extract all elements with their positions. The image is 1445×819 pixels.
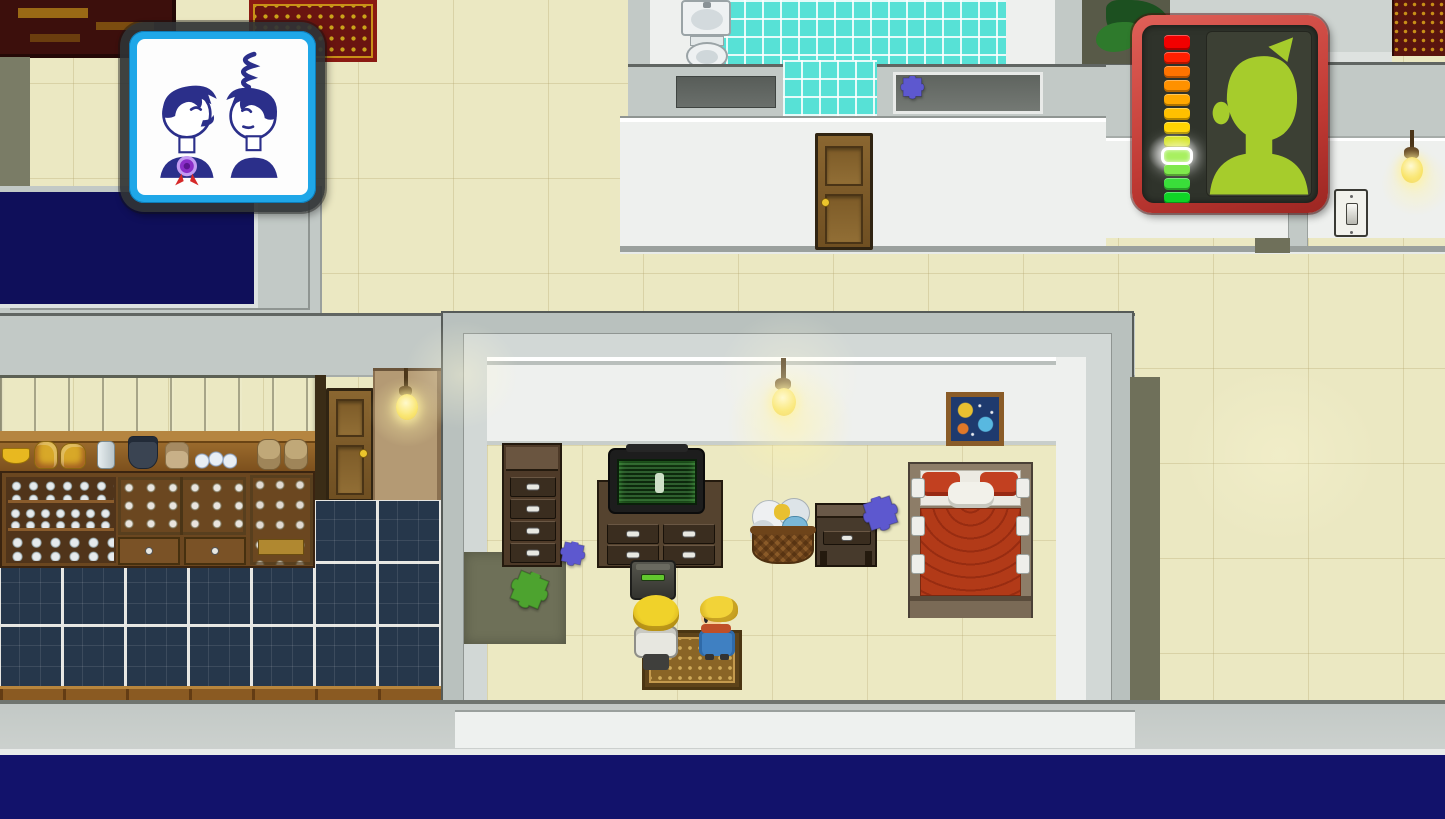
storage-jar — [257, 439, 281, 470]
wall-shadow-strip — [0, 57, 30, 189]
wall-inset-right — [893, 72, 1043, 114]
switch-screw — [1350, 195, 1353, 198]
double-bed[interactable] — [908, 462, 1033, 618]
bathroom-east-wall-white — [1006, 0, 1055, 64]
bed-blanket — [920, 508, 1021, 596]
mood-segment-6 — [1164, 122, 1190, 134]
wall-inset-left — [676, 76, 776, 108]
kitchen-door-frame — [315, 375, 326, 502]
laundry-basket[interactable] — [750, 498, 816, 566]
drawer[interactable] — [607, 524, 659, 544]
teacups — [195, 449, 237, 469]
door-panel — [825, 194, 863, 244]
door-knob — [821, 198, 830, 207]
basket-rim — [750, 526, 816, 534]
popup-border — [129, 31, 316, 203]
drawer-handle — [526, 484, 540, 491]
scribble-icon — [243, 54, 254, 87]
wall-base-line — [620, 246, 1445, 252]
hall-shadow-strip — [1130, 377, 1160, 703]
glass-jar — [97, 441, 115, 469]
hanging-bulb-kitchen — [396, 394, 418, 420]
npc-scarf — [701, 624, 731, 633]
dish-row — [8, 479, 114, 503]
bed-post — [1016, 516, 1030, 536]
tv-top-bar — [626, 444, 688, 452]
tv[interactable] — [608, 448, 705, 514]
dish-row — [8, 535, 114, 561]
dresser-top — [506, 447, 558, 471]
mood-segment-11 — [1164, 192, 1190, 203]
bed-post — [911, 554, 925, 574]
bookshelf-gold-trim — [30, 34, 80, 42]
drawer-handle — [626, 531, 640, 538]
storage-jar — [284, 439, 308, 470]
cabinet-door[interactable] — [184, 537, 246, 565]
door-knob — [359, 449, 368, 458]
npc-shirt — [699, 630, 735, 656]
bathroom-door[interactable] — [815, 133, 873, 250]
player-hair — [633, 595, 679, 631]
bathroom-corridor-tiles — [783, 60, 877, 124]
bowl-yellow — [2, 448, 30, 464]
nightstand-leg — [865, 551, 872, 565]
door-panel — [336, 399, 364, 437]
mood-meter-panel — [1142, 25, 1318, 203]
mood-segment-5 — [1164, 108, 1190, 120]
bed-pillow-white — [948, 482, 994, 508]
hanging-bulb-bedroom — [772, 388, 796, 416]
drawer-handle — [841, 535, 853, 541]
drawer[interactable] — [510, 521, 556, 541]
tall-dresser[interactable] — [502, 443, 562, 567]
door-panel — [825, 146, 863, 186]
drawer-handle — [682, 552, 696, 559]
mood-segment-2 — [1164, 66, 1190, 78]
drawer[interactable] — [823, 531, 871, 545]
npc-hair — [700, 596, 738, 622]
space-picture — [946, 392, 1004, 446]
bedroom-east-wall — [1056, 357, 1086, 707]
mood-segment-0 — [1164, 35, 1190, 50]
light-switch[interactable] — [1334, 189, 1368, 237]
nightstand-top — [817, 505, 875, 518]
mood-segment-7 — [1164, 136, 1190, 148]
character-npc[interactable] — [699, 596, 739, 662]
talking-characters-icon — [141, 41, 301, 191]
bed-post — [911, 478, 925, 498]
sink-bowl — [691, 9, 723, 30]
switch-toggle[interactable] — [1346, 203, 1358, 225]
sink-faucet — [703, 2, 711, 8]
hanging-bulb-east — [1401, 157, 1423, 183]
drawer[interactable] — [663, 524, 715, 544]
bed-post — [911, 516, 925, 536]
bathroom-sink[interactable] — [681, 0, 731, 36]
bathroom-west-wall — [628, 0, 650, 64]
mood-segment-9 — [1164, 164, 1190, 176]
mood-segment-1 — [1164, 52, 1190, 64]
character-portrait-silhouette — [1206, 31, 1312, 197]
game-viewport — [0, 0, 1445, 819]
tv-screen — [617, 459, 697, 505]
mood-meter-segments — [1160, 33, 1194, 195]
toilet-seat — [696, 50, 718, 64]
switch-screw — [1350, 231, 1353, 234]
bed-post — [1016, 478, 1030, 498]
drawer-handle — [526, 506, 540, 513]
cooking-pot — [128, 436, 158, 469]
mood-segment-8 — [1164, 150, 1190, 162]
machine-lid — [636, 564, 670, 570]
hall-shadow-patch — [1255, 238, 1290, 253]
glass-cabinet[interactable] — [118, 477, 246, 535]
npc-foot — [705, 654, 714, 660]
open-shelves — [6, 477, 116, 563]
cabinet-door[interactable] — [118, 537, 180, 565]
player-pants — [643, 654, 669, 670]
dish-row — [8, 507, 114, 531]
ceramic-jar — [165, 442, 189, 469]
nightstand[interactable] — [815, 503, 877, 567]
drawer-handle — [682, 531, 696, 538]
mood-meter — [1132, 15, 1328, 213]
nightstand-leg — [820, 551, 827, 565]
glass-cabinet-tall[interactable] — [250, 475, 313, 565]
drawer[interactable] — [510, 543, 556, 563]
light-glow — [1140, 330, 1420, 580]
portrait-panel — [1206, 31, 1312, 197]
bed-footboard — [910, 596, 1031, 618]
tv-figure — [655, 473, 664, 493]
drawer-handle — [526, 550, 540, 557]
red-corner-rug — [1392, 0, 1445, 56]
npc-foot — [720, 654, 729, 660]
bed-post — [1016, 554, 1030, 574]
drawer[interactable] — [510, 477, 556, 497]
door-handle — [211, 547, 219, 555]
drawer-handle — [626, 552, 640, 559]
bathroom-floor-tiles — [708, 0, 1006, 64]
drawer[interactable] — [510, 499, 556, 519]
door-handle — [145, 547, 153, 555]
brass-item — [258, 539, 304, 555]
mood-segment-3 — [1164, 80, 1190, 92]
mood-segment-4 — [1164, 94, 1190, 106]
food-sack — [60, 443, 86, 469]
machine-led-slot — [641, 574, 665, 581]
popup-canvas — [137, 39, 308, 195]
cabinet-divider — [180, 477, 183, 535]
kitchen-door[interactable] — [326, 388, 374, 502]
food-sack — [34, 441, 58, 469]
mood-segment-10 — [1164, 178, 1190, 190]
relationship-popup — [120, 22, 325, 212]
dish-shelf-unit — [0, 471, 315, 568]
drawer-handle — [526, 528, 540, 535]
bottom-dark-floor — [0, 755, 1445, 819]
character-player[interactable] — [633, 592, 679, 682]
bedroom-south-wall — [455, 710, 1135, 748]
bookshelf-gold-trim — [18, 8, 88, 18]
